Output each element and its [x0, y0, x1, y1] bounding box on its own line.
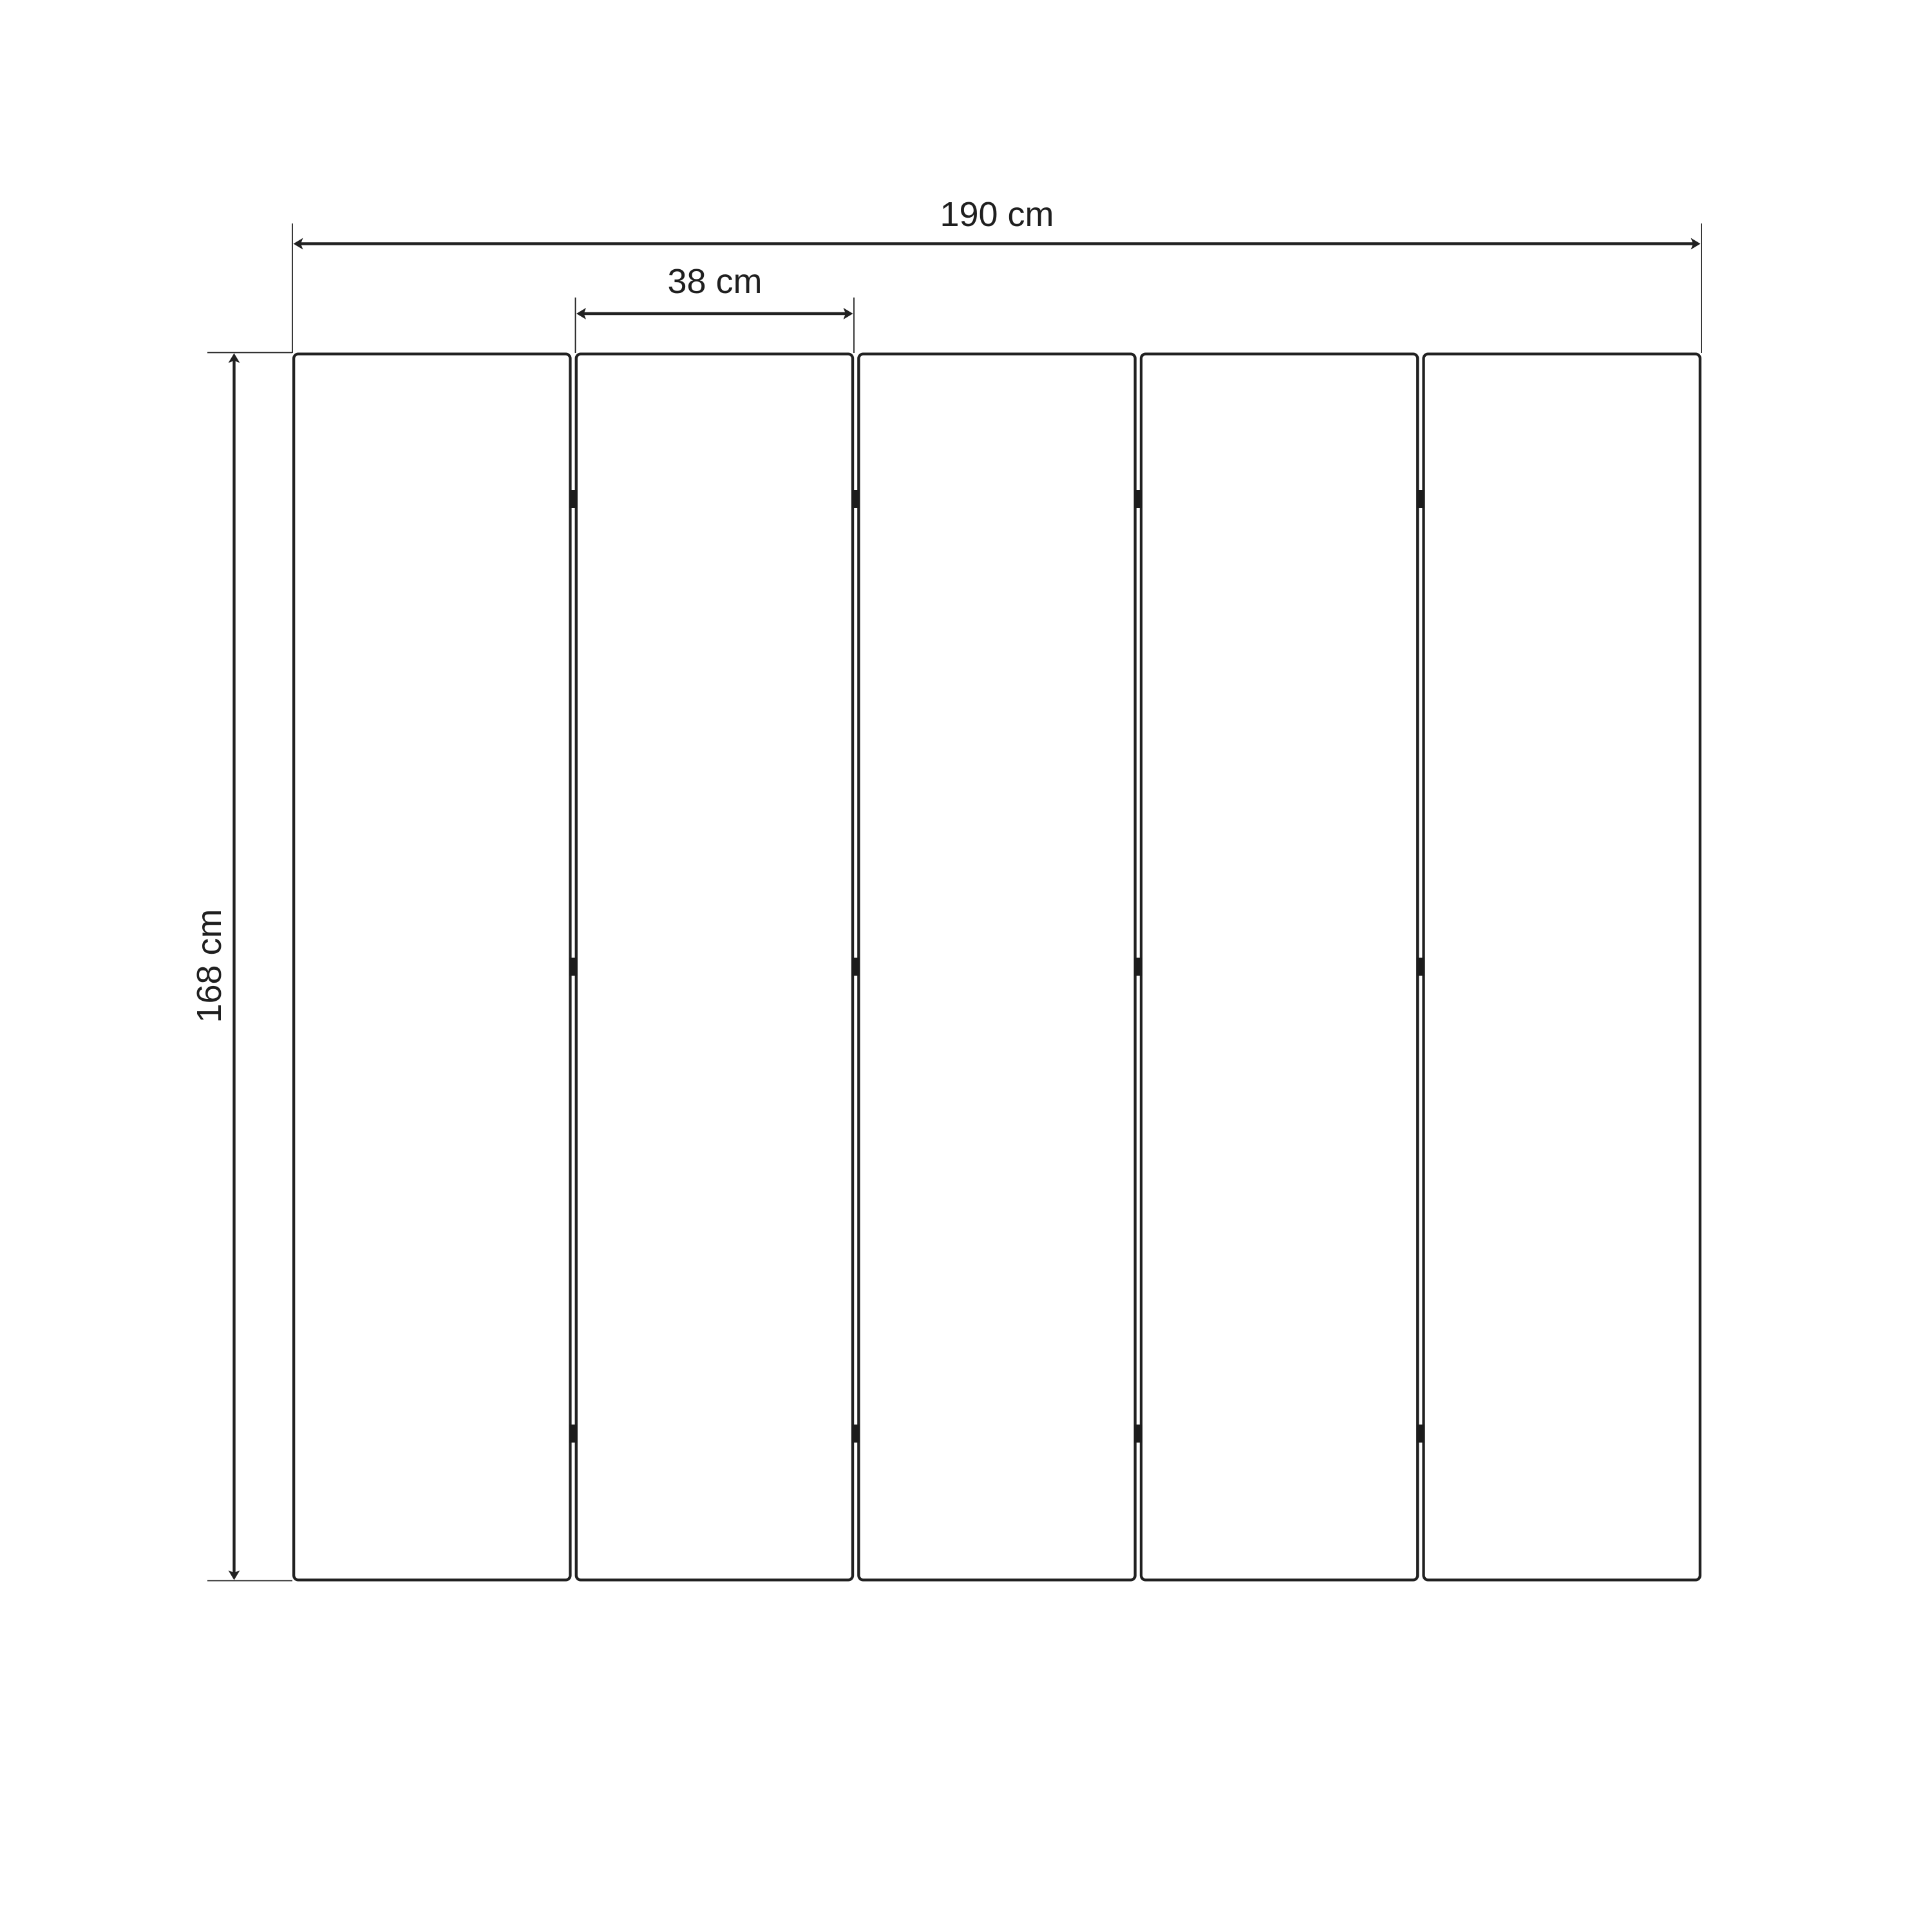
svg-text:168 cm: 168 cm	[190, 909, 229, 1023]
svg-text:38 cm: 38 cm	[667, 262, 762, 301]
svg-text:190 cm: 190 cm	[940, 195, 1054, 234]
